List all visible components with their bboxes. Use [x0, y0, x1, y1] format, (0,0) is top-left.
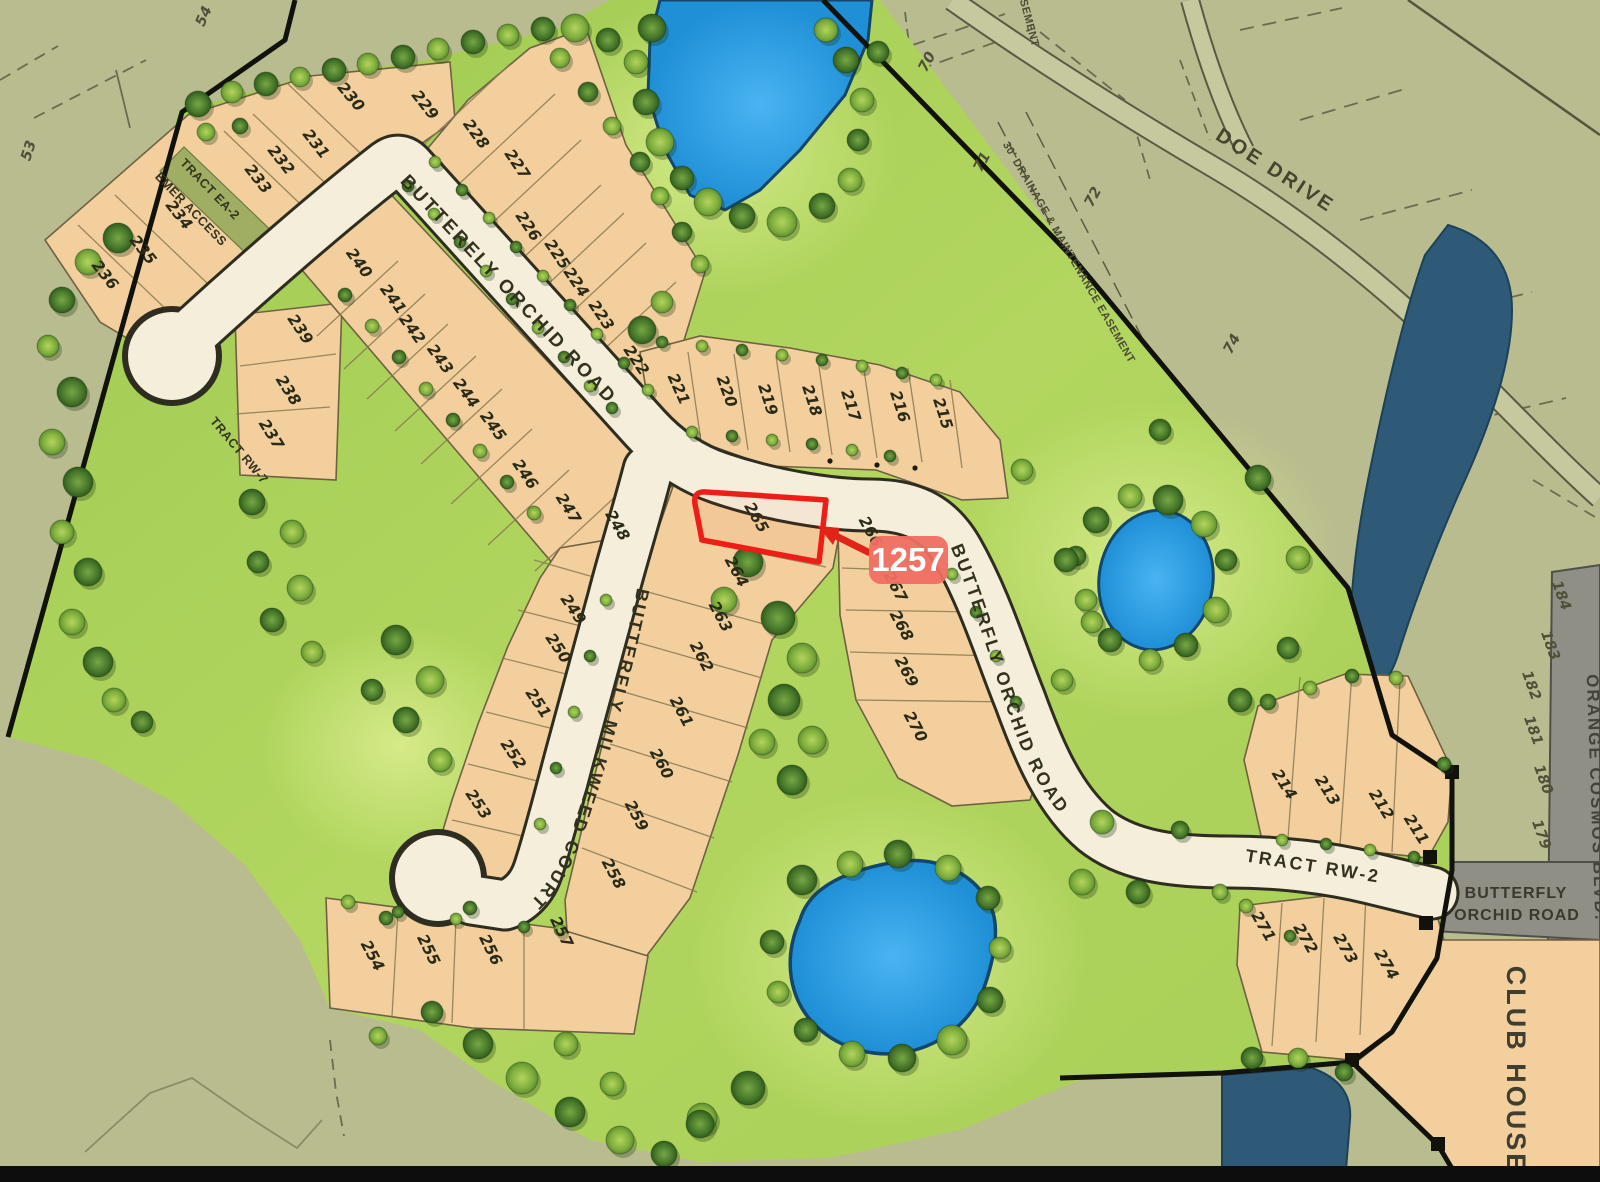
- tree-icon: [239, 489, 265, 515]
- tree-icon: [670, 166, 694, 190]
- tree-icon: [1090, 810, 1114, 834]
- tree-icon: [1054, 548, 1078, 572]
- tree-icon: [976, 886, 1000, 910]
- tree-icon: [638, 14, 666, 42]
- tree-icon: [814, 18, 838, 42]
- tree-icon: [280, 520, 304, 544]
- tree-icon: [767, 207, 797, 237]
- tree-icon: [749, 729, 775, 755]
- tree-icon: [1228, 688, 1252, 712]
- tree-icon: [1345, 669, 1359, 683]
- tree-icon: [777, 765, 807, 795]
- tree-icon: [1303, 681, 1317, 695]
- tree-icon: [290, 67, 310, 87]
- road-label-butterfly-orchid-east-1: BUTTERFLY: [1465, 885, 1568, 902]
- tree-icon: [550, 48, 570, 68]
- tree-icon: [531, 17, 555, 41]
- tree-icon: [1277, 637, 1299, 659]
- tree-icon: [421, 1001, 443, 1023]
- tree-icon: [63, 467, 93, 497]
- tree-icon: [456, 184, 468, 196]
- tree-icon: [809, 193, 835, 219]
- map-canvas: BUTTERELY ORCHID ROAD BUTTERFLY MILKWEED…: [0, 0, 1600, 1182]
- tree-icon: [392, 906, 404, 918]
- tree-icon: [247, 551, 269, 573]
- tree-icon: [1389, 671, 1403, 685]
- tree-icon: [672, 222, 692, 242]
- tree-icon: [59, 609, 85, 635]
- tree-icon: [646, 128, 674, 156]
- tree-icon: [1174, 633, 1198, 657]
- tree-icon: [847, 129, 869, 151]
- tree-icon: [50, 520, 74, 544]
- tree-icon: [197, 123, 215, 141]
- tree-icon: [1241, 1047, 1263, 1069]
- tree-icon: [888, 1044, 916, 1072]
- tree-icon: [630, 152, 650, 172]
- price-badge-label: 1257: [871, 541, 944, 578]
- tree-icon: [392, 350, 406, 364]
- tree-icon: [1364, 844, 1376, 856]
- tree-icon: [429, 156, 441, 168]
- tree-icon: [1203, 597, 1229, 623]
- tree-icon: [450, 913, 462, 925]
- tree-icon: [221, 81, 243, 103]
- tree-icon: [798, 726, 826, 754]
- tree-icon: [473, 444, 487, 458]
- letterbox-bar: [0, 1166, 1600, 1182]
- tree-icon: [1051, 669, 1073, 691]
- tree-icon: [57, 377, 87, 407]
- tree-icon: [1239, 899, 1253, 913]
- site-plan-map: BUTTERELY ORCHID ROAD BUTTERFLY MILKWEED…: [0, 0, 1600, 1182]
- tree-icon: [1437, 757, 1451, 771]
- tree-icon: [833, 47, 859, 73]
- tree-icon: [446, 413, 460, 427]
- tree-icon: [260, 608, 284, 632]
- tree-icon: [131, 711, 153, 733]
- tree-icon: [603, 117, 621, 135]
- tree-icon: [357, 53, 379, 75]
- tree-icon: [463, 901, 477, 915]
- tree-icon: [600, 1072, 624, 1096]
- tree-icon: [1212, 884, 1228, 900]
- tree-icon: [1335, 1063, 1353, 1081]
- tree-icon: [884, 450, 896, 462]
- tree-icon: [1215, 549, 1237, 571]
- tree-icon: [497, 24, 519, 46]
- tree-icon: [510, 241, 522, 253]
- tree-icon: [1191, 511, 1217, 537]
- tree-icon: [642, 384, 654, 396]
- tree-icon: [39, 429, 65, 455]
- tree-icon: [1320, 838, 1332, 850]
- tree-icon: [1081, 611, 1103, 633]
- tree-icon: [816, 354, 828, 366]
- tree-icon: [1069, 869, 1095, 895]
- tree-icon: [850, 88, 874, 112]
- tree-icon: [776, 349, 788, 361]
- tree-icon: [1288, 1048, 1308, 1068]
- tree-icon: [381, 625, 411, 655]
- tree-icon: [628, 316, 656, 344]
- tree-icon: [606, 1126, 634, 1154]
- tree-icon: [686, 1110, 714, 1138]
- tree-icon: [656, 336, 668, 348]
- tree-icon: [83, 647, 113, 677]
- tree-icon: [1075, 589, 1097, 611]
- tree-icon: [837, 851, 863, 877]
- tree-icon: [463, 1029, 493, 1059]
- tree-icon: [506, 1062, 538, 1094]
- tree-icon: [338, 288, 352, 302]
- tree-icon: [806, 438, 818, 450]
- tree-icon: [185, 91, 211, 117]
- road-label-butterfly-orchid-east-2: ORCHID ROAD: [1454, 907, 1580, 924]
- tree-icon: [461, 30, 485, 54]
- tree-icon: [102, 688, 126, 712]
- tree-icon: [322, 58, 346, 82]
- tree-icon: [1245, 465, 1271, 491]
- tree-icon: [427, 38, 449, 60]
- tree-icon: [428, 748, 452, 772]
- tree-icon: [361, 679, 383, 701]
- tree-icon: [596, 28, 620, 52]
- tree-icon: [694, 188, 722, 216]
- tree-icon: [568, 706, 580, 718]
- tree-icon: [651, 1141, 677, 1167]
- tree-icon: [768, 684, 800, 716]
- tree-icon: [731, 1071, 765, 1105]
- tree-icon: [600, 594, 612, 606]
- tree-icon: [365, 319, 379, 333]
- tree-icon: [416, 666, 444, 694]
- tree-icon: [1408, 851, 1420, 863]
- tree-icon: [564, 299, 576, 311]
- tree-icon: [518, 921, 530, 933]
- tree-icon: [766, 434, 778, 446]
- tree-icon: [1011, 459, 1033, 481]
- tree-icon: [989, 937, 1011, 959]
- tree-icon: [1118, 484, 1142, 508]
- tree-icon: [977, 987, 1003, 1013]
- tree-icon: [794, 1018, 818, 1042]
- tree-icon: [287, 575, 313, 601]
- tree-icon: [534, 818, 546, 830]
- tree-icon: [1139, 649, 1161, 671]
- tree-icon: [1149, 419, 1171, 441]
- tree-icon: [1276, 834, 1288, 846]
- tree-icon: [726, 430, 738, 442]
- tree-icon: [686, 426, 698, 438]
- tree-icon: [1260, 694, 1276, 710]
- tree-icon: [736, 344, 748, 356]
- tree-icon: [884, 840, 912, 868]
- tree-icon: [838, 168, 862, 192]
- tree-icon: [1126, 880, 1150, 904]
- tree-icon: [74, 558, 102, 586]
- tree-icon: [1171, 821, 1189, 839]
- tree-icon: [500, 475, 514, 489]
- tree-icon: [341, 895, 355, 909]
- tree-icon: [393, 707, 419, 733]
- tree-icon: [369, 1027, 387, 1045]
- tree-icon: [691, 255, 709, 273]
- tree-icon: [935, 855, 961, 881]
- tree-icon: [760, 930, 784, 954]
- tree-icon: [846, 444, 858, 456]
- tree-icon: [561, 14, 589, 42]
- tree-icon: [419, 382, 433, 396]
- tree-icon: [49, 287, 75, 313]
- tree-icon: [767, 981, 789, 1003]
- tree-icon: [550, 762, 562, 774]
- tree-icon: [37, 335, 59, 357]
- area-label-club-house: CLUB HOUSE: [1501, 966, 1531, 1175]
- tree-icon: [527, 506, 541, 520]
- tree-icon: [537, 270, 549, 282]
- tree-icon: [379, 911, 393, 925]
- tree-icon: [103, 223, 133, 253]
- tree-icon: [391, 45, 415, 69]
- tree-icon: [856, 360, 868, 372]
- tree-icon: [1083, 507, 1109, 533]
- tree-icon: [930, 374, 942, 386]
- tree-icon: [1153, 485, 1183, 515]
- tree-icon: [301, 641, 323, 663]
- tree-icon: [232, 118, 248, 134]
- tree-icon: [584, 650, 596, 662]
- tree-icon: [633, 89, 659, 115]
- tree-icon: [554, 1032, 578, 1056]
- tree-icon: [937, 1025, 967, 1055]
- tree-icon: [896, 367, 908, 379]
- tree-icon: [651, 187, 669, 205]
- tree-icon: [651, 291, 673, 313]
- price-badge[interactable]: 1257: [869, 536, 948, 584]
- tree-icon: [839, 1041, 865, 1067]
- tree-icon: [761, 601, 795, 635]
- canal-water-south: [1222, 1068, 1350, 1182]
- tree-icon: [696, 340, 708, 352]
- tree-icon: [729, 203, 755, 229]
- tree-icon: [787, 865, 817, 895]
- tree-icon: [624, 50, 648, 74]
- tree-icon: [867, 41, 889, 63]
- tree-icon: [787, 643, 817, 673]
- tree-icon: [555, 1097, 585, 1127]
- tree-icon: [254, 72, 278, 96]
- tree-icon: [1286, 546, 1310, 570]
- tree-icon: [578, 82, 598, 102]
- tree-icon: [483, 212, 495, 224]
